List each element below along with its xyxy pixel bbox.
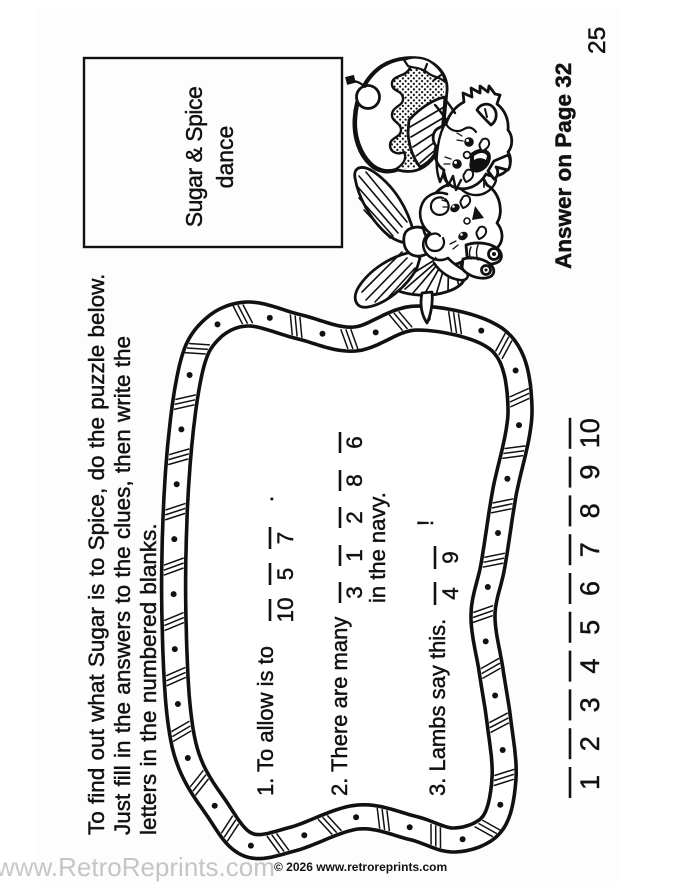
svg-text:4: 4 [438,587,463,600]
svg-text:1. To allow is to: 1. To allow is to [253,646,278,796]
svg-text:2: 2 [342,511,367,524]
svg-text:9: 9 [438,551,463,564]
svg-text:9: 9 [575,465,605,480]
svg-text:3: 3 [575,697,605,712]
svg-text:1: 1 [342,549,367,562]
svg-text:7: 7 [575,542,605,557]
svg-text:6: 6 [575,581,605,596]
svg-text:25: 25 [584,27,611,54]
svg-text:2: 2 [575,736,605,751]
svg-text:8: 8 [342,474,367,487]
svg-text:10: 10 [273,597,298,622]
svg-text:To find out what Sugar is to S: To find out what Sugar is to Spice, do t… [84,274,109,835]
svg-text:10: 10 [575,418,605,448]
svg-text:dance: dance [212,126,238,189]
svg-text:3: 3 [342,586,367,599]
svg-text:6: 6 [342,436,367,449]
svg-text:www.RetroReprints.com: www.RetroReprints.com [0,852,275,882]
svg-text:letters in the numbered blanks: letters in the numbered blanks. [136,523,161,835]
svg-text:3. Lambs say this.: 3. Lambs say this. [425,619,450,796]
svg-text:Answer on Page 32: Answer on Page 32 [551,63,576,269]
svg-text:5: 5 [575,620,605,635]
svg-text:1: 1 [575,775,605,790]
svg-text:4: 4 [575,659,605,674]
svg-text:Just fill in the answers to th: Just fill in the answers to the clues, t… [110,336,135,835]
svg-text:7: 7 [273,532,298,545]
svg-text:Sugar & Spice: Sugar & Spice [181,87,207,228]
svg-text:2. There are many: 2. There are many [327,617,352,796]
svg-text:© 2026 www.retroreprints.com: © 2026 www.retroreprints.com [274,860,447,874]
svg-text:in the navy.: in the navy. [365,492,390,603]
svg-text:!: ! [413,520,438,526]
svg-text:.: . [253,496,278,502]
svg-text:8: 8 [575,503,605,518]
svg-text:5: 5 [273,568,298,581]
